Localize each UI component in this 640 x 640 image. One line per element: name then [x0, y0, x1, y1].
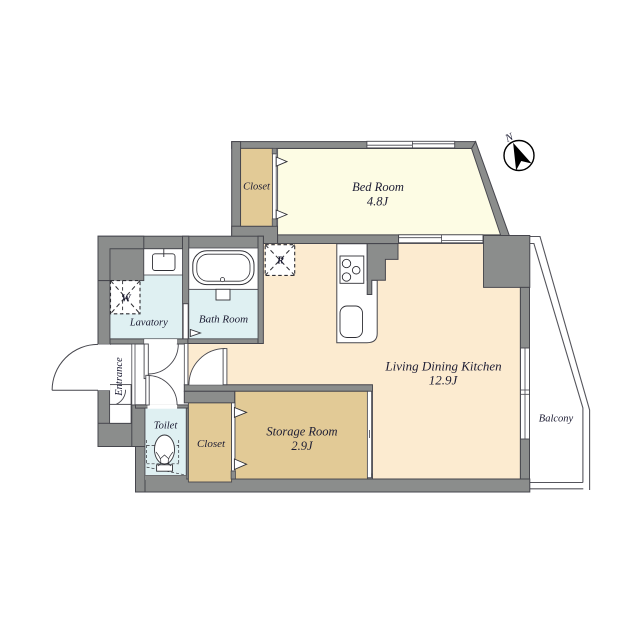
svg-text:Entrance: Entrance: [114, 357, 125, 397]
svg-text:Closet: Closet: [197, 438, 226, 450]
svg-text:Storage Room: Storage Room: [266, 425, 337, 439]
svg-text:Bed Room: Bed Room: [352, 180, 404, 194]
svg-text:Toilet: Toilet: [154, 421, 179, 432]
svg-text:R: R: [276, 256, 284, 267]
svg-text:2.9J: 2.9J: [291, 439, 314, 453]
svg-text:Bath Room: Bath Room: [199, 314, 248, 326]
svg-text:Living Dining Kitchen: Living Dining Kitchen: [384, 359, 501, 374]
svg-text:Balcony: Balcony: [539, 414, 574, 425]
svg-text:Lavatory: Lavatory: [129, 318, 168, 329]
svg-text:12.9J: 12.9J: [429, 373, 459, 388]
svg-text:4.8J: 4.8J: [367, 195, 390, 209]
svg-text:W: W: [121, 293, 131, 304]
svg-text:Closet: Closet: [243, 182, 271, 193]
